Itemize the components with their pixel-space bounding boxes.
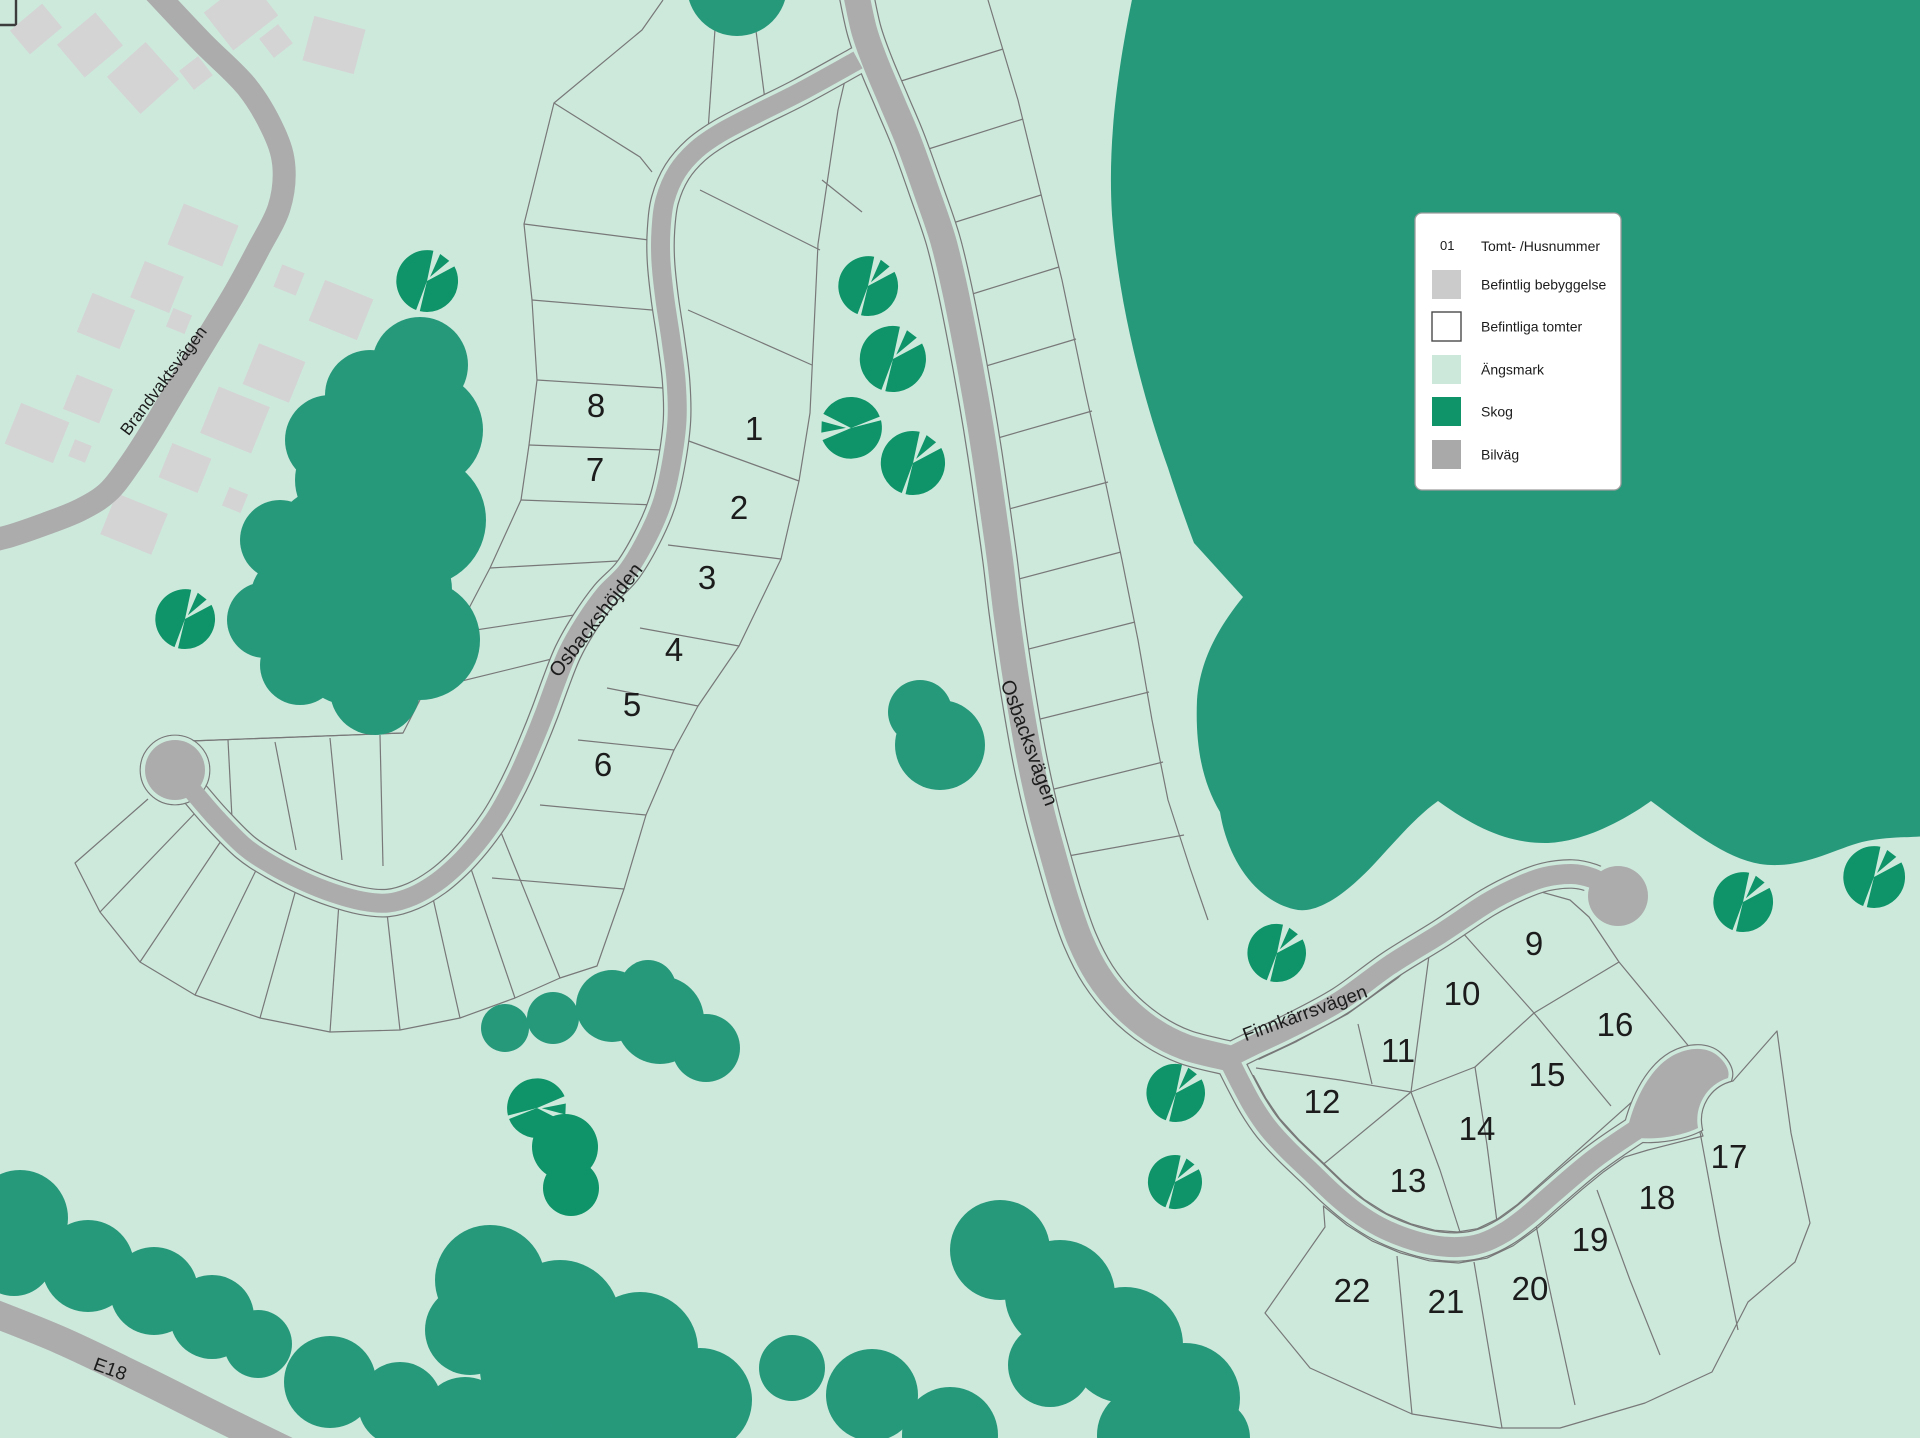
- svg-text:17: 17: [1711, 1138, 1748, 1175]
- svg-text:Skog: Skog: [1481, 404, 1513, 420]
- svg-text:01: 01: [1440, 238, 1454, 253]
- svg-text:Befintlig bebyggelse: Befintlig bebyggelse: [1481, 277, 1607, 293]
- svg-text:Tomt- /Husnummer: Tomt- /Husnummer: [1481, 238, 1600, 254]
- svg-text:11: 11: [1381, 1032, 1415, 1069]
- svg-text:15: 15: [1529, 1056, 1566, 1093]
- svg-text:9: 9: [1525, 925, 1543, 962]
- svg-text:21: 21: [1428, 1283, 1465, 1320]
- svg-text:Ängsmark: Ängsmark: [1481, 362, 1545, 378]
- svg-text:8: 8: [587, 387, 605, 424]
- svg-text:18: 18: [1639, 1179, 1676, 1216]
- svg-text:20: 20: [1512, 1270, 1549, 1307]
- svg-text:4: 4: [665, 631, 683, 668]
- svg-text:12: 12: [1304, 1083, 1341, 1120]
- svg-text:10: 10: [1444, 975, 1481, 1012]
- svg-text:14: 14: [1459, 1110, 1496, 1147]
- svg-text:19: 19: [1572, 1221, 1609, 1258]
- svg-text:Befintliga tomter: Befintliga tomter: [1481, 319, 1582, 335]
- svg-text:Bilväg: Bilväg: [1481, 447, 1519, 463]
- svg-text:22: 22: [1334, 1272, 1371, 1309]
- svg-text:1: 1: [745, 410, 763, 447]
- svg-text:16: 16: [1597, 1006, 1634, 1043]
- svg-text:3: 3: [698, 559, 716, 596]
- svg-text:6: 6: [594, 746, 612, 783]
- svg-text:13: 13: [1390, 1162, 1427, 1199]
- svg-text:5: 5: [623, 686, 641, 723]
- svg-text:2: 2: [730, 489, 748, 526]
- svg-text:7: 7: [586, 451, 604, 488]
